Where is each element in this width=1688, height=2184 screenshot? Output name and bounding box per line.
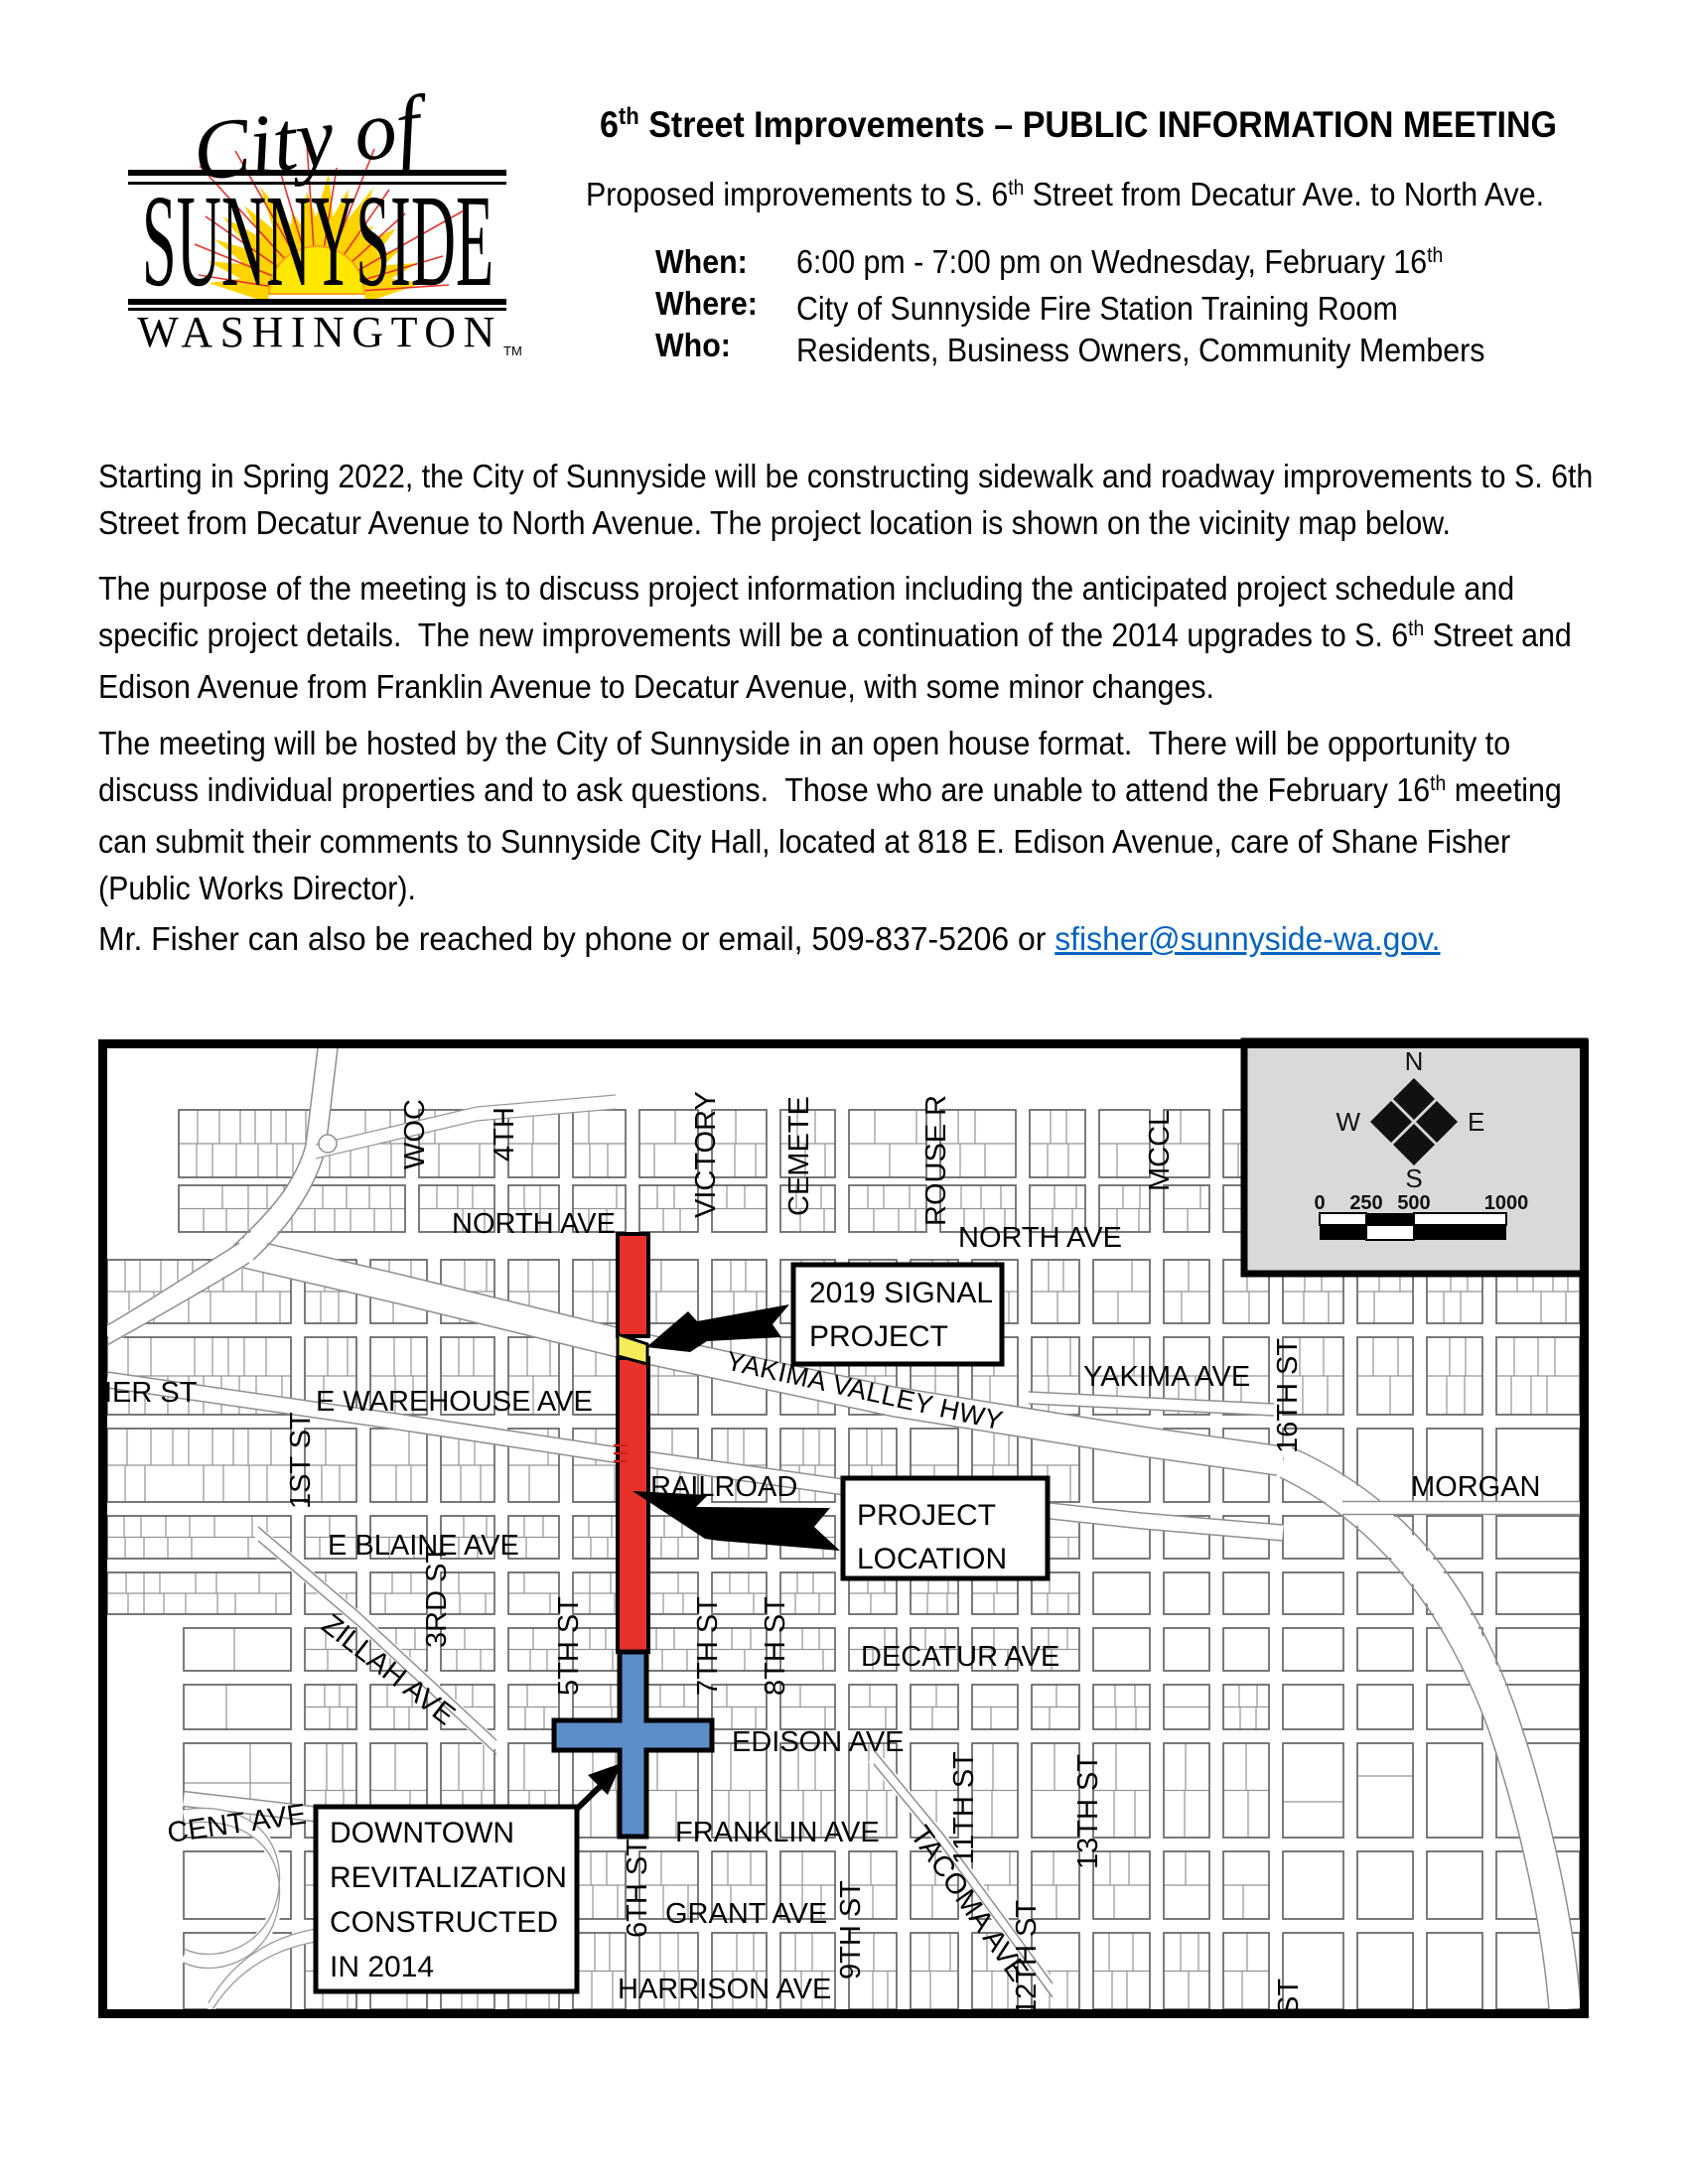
svg-text:DECATUR AVE: DECATUR AVE [861, 1641, 1059, 1673]
svg-text:CEMETE: CEMETE [783, 1096, 815, 1216]
svg-text:YAKIMA AVE: YAKIMA AVE [1083, 1361, 1250, 1393]
svg-text:W: W [1336, 1107, 1360, 1137]
svg-text:4TH: 4TH [489, 1107, 520, 1161]
svg-text:NORTH AVE: NORTH AVE [452, 1208, 616, 1240]
svg-text:PROJECT: PROJECT [809, 1320, 948, 1353]
svg-text:IN 2014: IN 2014 [330, 1951, 434, 1983]
svg-text:5TH ST: 5TH ST [553, 1596, 585, 1696]
svg-text:REVITALIZATION: REVITALIZATION [330, 1861, 567, 1894]
svg-text:IER ST: IER ST [104, 1377, 198, 1409]
svg-text:13TH ST: 13TH ST [1072, 1754, 1104, 1869]
svg-text:CONSTRUCTED: CONSTRUCTED [330, 1906, 558, 1939]
svg-text:2019 SIGNAL: 2019 SIGNAL [809, 1277, 993, 1309]
svg-text:DOWNTOWN: DOWNTOWN [330, 1817, 514, 1849]
svg-text:GRANT AVE: GRANT AVE [665, 1898, 827, 1930]
svg-text:VICTORY: VICTORY [690, 1091, 722, 1218]
svg-text:1ST ST: 1ST ST [285, 1412, 317, 1509]
svg-text:ROUSE R: ROUSE R [920, 1095, 952, 1226]
svg-text:S: S [1405, 1163, 1422, 1193]
svg-text:11TH ST: 11TH ST [948, 1751, 980, 1864]
svg-text:LOCATION: LOCATION [857, 1543, 1007, 1575]
svg-text:500: 500 [1397, 1192, 1430, 1214]
svg-text:FRANKLIN AVE: FRANKLIN AVE [675, 1817, 880, 1848]
svg-text:HARRISON AVE: HARRISON AVE [618, 1974, 831, 2005]
svg-text:12TH ST: 12TH ST [1011, 1900, 1043, 2015]
svg-text:WOC: WOC [399, 1099, 431, 1169]
svg-text:E: E [1468, 1107, 1484, 1137]
svg-text:8TH ST: 8TH ST [760, 1596, 791, 1696]
svg-text:16TH ST: 16TH ST [1272, 1338, 1304, 1453]
svg-text:7TH ST: 7TH ST [692, 1596, 724, 1696]
svg-text:N: N [1405, 1046, 1424, 1076]
svg-text:9TH ST: 9TH ST [835, 1880, 867, 1979]
svg-text:NORTH AVE: NORTH AVE [958, 1222, 1122, 1254]
svg-text:PROJECT: PROJECT [857, 1499, 996, 1532]
svg-text:MCCL: MCCL [1144, 1110, 1176, 1191]
svg-text:3RD ST: 3RD ST [421, 1546, 453, 1648]
svg-text:MORGAN: MORGAN [1411, 1471, 1541, 1503]
svg-text:1000: 1000 [1484, 1192, 1529, 1214]
svg-text:EDISON AVE: EDISON AVE [732, 1726, 905, 1758]
svg-text:0: 0 [1314, 1192, 1325, 1214]
svg-text:E WAREHOUSE AVE: E WAREHOUSE AVE [316, 1386, 593, 1418]
svg-text:250: 250 [1349, 1192, 1382, 1214]
svg-text:6TH ST: 6TH ST [622, 1839, 653, 1938]
